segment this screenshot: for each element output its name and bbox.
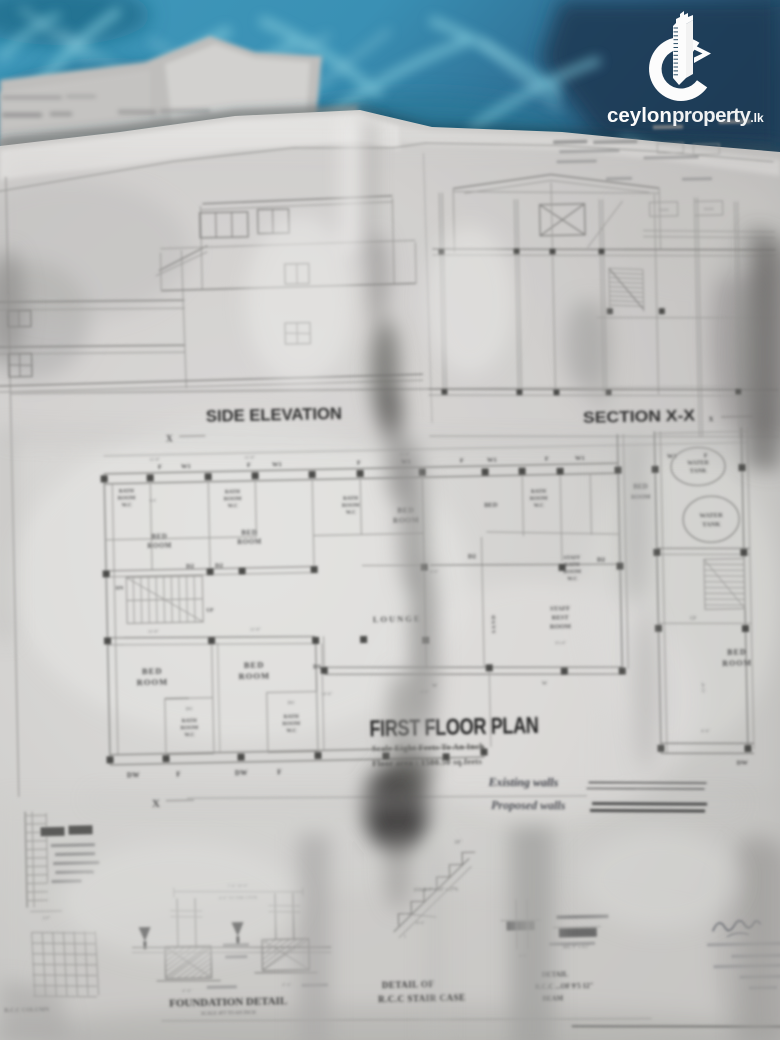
svg-text:DETAIL OF: DETAIL OF xyxy=(382,979,435,990)
svg-text:9'1-0": 9'1-0" xyxy=(555,640,566,645)
svg-text:11'-0": 11'-0" xyxy=(250,627,261,632)
svg-text:BATH: BATH xyxy=(119,488,135,494)
svg-text:W.C: W.C xyxy=(122,502,132,508)
svg-text:CF: CF xyxy=(690,617,696,622)
svg-text:ROOM: ROOM xyxy=(137,677,169,688)
svg-text:ROOM: ROOM xyxy=(282,721,301,727)
svg-text:ROOM: ROOM xyxy=(563,569,582,575)
svg-text:ceylonproperty.lk: ceylonproperty.lk xyxy=(607,104,764,127)
svg-text:ROOM: ROOM xyxy=(147,542,172,551)
svg-text:W: W xyxy=(542,681,548,687)
svg-text:ROOM: ROOM xyxy=(180,725,199,731)
svg-text:F: F xyxy=(704,452,708,459)
svg-text:ROOM: ROOM xyxy=(237,538,262,547)
svg-text:ROOM: ROOM xyxy=(550,623,571,630)
svg-text:W1: W1 xyxy=(272,461,282,468)
svg-text:W1: W1 xyxy=(181,463,191,470)
svg-text:DO: DO xyxy=(186,706,193,711)
svg-text:R.C.C STAIR CASE: R.C.C STAIR CASE xyxy=(378,992,466,1004)
svg-text:F: F xyxy=(158,464,162,471)
svg-text:BED: BED xyxy=(727,647,747,656)
svg-text:ROOM: ROOM xyxy=(239,670,271,681)
svg-text:WATER: WATER xyxy=(699,512,723,519)
svg-text:10": 10" xyxy=(454,841,461,846)
svg-text:D2: D2 xyxy=(468,553,476,560)
svg-text:SAND: SAND xyxy=(491,614,497,633)
svg-text:F: F xyxy=(176,770,180,778)
svg-text:ROOM: ROOM xyxy=(342,503,361,509)
svg-text:WATER: WATER xyxy=(687,460,709,466)
svg-text:W.C: W.C xyxy=(346,510,356,516)
svg-text:BED: BED xyxy=(142,666,163,676)
svg-text:DW: DW xyxy=(127,771,140,779)
svg-text:BATH: BATH xyxy=(182,718,198,724)
svg-text:SECTION X-X: SECTION X-X xyxy=(583,408,696,427)
svg-text:REST: REST xyxy=(552,614,570,621)
svg-text:11'-0": 11'-0" xyxy=(148,629,159,634)
svg-text:F: F xyxy=(545,456,549,463)
svg-text:xxxx: xxxx xyxy=(704,207,715,212)
svg-text:W.C: W.C xyxy=(286,728,296,734)
svg-text:BATH: BATH xyxy=(531,489,547,495)
svg-text:ROOM: ROOM xyxy=(118,495,137,501)
svg-text:11'-0": 11'-0" xyxy=(149,457,160,462)
svg-text:BATH: BATH xyxy=(284,714,300,720)
svg-text:2-0": 2-0" xyxy=(42,915,50,920)
svg-text:1: 1 xyxy=(404,934,406,939)
svg-text:14'-6": 14'-6" xyxy=(321,691,332,696)
svg-text:xxxx: xxxx xyxy=(659,208,670,213)
svg-text:ROOM: ROOM xyxy=(530,496,549,502)
svg-text:BED: BED xyxy=(241,529,257,537)
svg-text:F: F xyxy=(277,768,281,776)
svg-text:STAFF: STAFF xyxy=(550,605,570,612)
svg-text:BATH: BATH xyxy=(343,496,359,502)
svg-text:DO: DO xyxy=(288,700,295,705)
svg-text:F: F xyxy=(247,462,251,469)
svg-text:F: F xyxy=(357,460,361,467)
svg-text:BED: BED xyxy=(244,660,265,670)
svg-text:W.C: W.C xyxy=(184,732,194,738)
svg-text:6-0: 6-0 xyxy=(150,498,157,503)
svg-text:4"-6": 4"-6" xyxy=(182,988,192,993)
svg-text:W.C: W.C xyxy=(567,576,577,582)
svg-text:BED: BED xyxy=(151,533,167,541)
svg-text:BED: BED xyxy=(484,502,498,509)
svg-text:W.C: W.C xyxy=(228,503,238,509)
svg-text:x: x xyxy=(709,413,714,423)
svg-text:DW: DW xyxy=(737,759,749,766)
svg-text:BATH: BATH xyxy=(225,489,241,495)
svg-text:D2: D2 xyxy=(215,562,223,569)
svg-text:W1: W1 xyxy=(575,455,585,462)
svg-text:6'-6": 6'-6" xyxy=(701,728,710,733)
svg-text:BATH: BATH xyxy=(564,562,580,568)
svg-text:STAFF: STAFF xyxy=(563,555,581,561)
svg-text:TANK: TANK xyxy=(690,468,707,474)
svg-text:DN: DN xyxy=(115,586,123,592)
svg-text:11'-0": 11'-0" xyxy=(701,682,706,693)
svg-text:4"-6": 4"-6" xyxy=(282,982,292,987)
svg-text:SEC 9" x 4.5": SEC 9" x 4.5" xyxy=(563,945,590,951)
svg-text:ROOM: ROOM xyxy=(224,496,243,502)
svg-text:D2: D2 xyxy=(186,563,194,570)
svg-text:FOUNDATION DETAIL: FOUNDATION DETAIL xyxy=(169,995,287,1009)
svg-text:8'-0": 8'-0" xyxy=(416,920,425,925)
svg-text:F: F xyxy=(460,457,464,464)
svg-text:ROOM: ROOM xyxy=(722,658,752,668)
svg-text:SIDE ELEVATION: SIDE ELEVATION xyxy=(206,404,342,426)
svg-text:D1: D1 xyxy=(313,663,321,670)
svg-text:W.C: W.C xyxy=(534,503,544,509)
svg-text:D2: D2 xyxy=(597,556,605,563)
svg-text:W1: W1 xyxy=(487,457,497,464)
svg-text:TANK: TANK xyxy=(702,521,720,528)
svg-text:DW: DW xyxy=(235,769,248,777)
svg-text:11'-0": 11'-0" xyxy=(244,455,255,460)
svg-text:UP: UP xyxy=(206,608,214,614)
svg-text:Existing walls: Existing walls xyxy=(488,775,559,789)
